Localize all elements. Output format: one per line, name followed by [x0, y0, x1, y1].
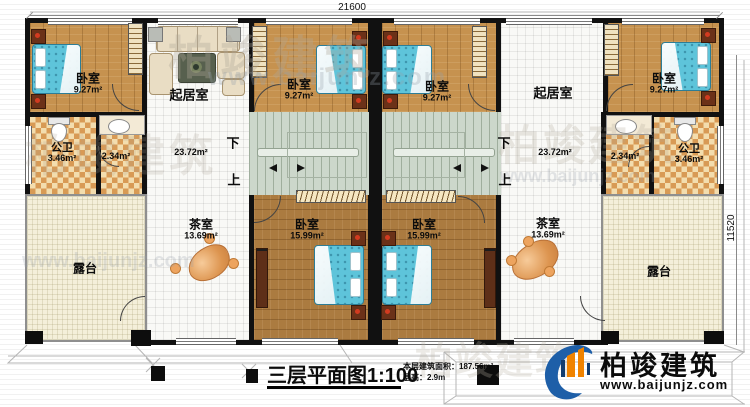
nightstand-br5-b	[351, 305, 366, 320]
bathroom-right-area: 3.46m²	[675, 155, 704, 165]
sofa-ottoman	[222, 79, 245, 96]
nightstand-br3-b	[383, 94, 398, 109]
window-bottom-br5	[262, 338, 338, 345]
wardrobe-br3	[472, 26, 487, 78]
living-left-name: 起居室	[169, 85, 208, 104]
pillow-br2-b	[352, 71, 363, 90]
nightstand-br2-b	[352, 94, 367, 109]
bedroom-1-area: 9.27m²	[74, 86, 103, 96]
column-4	[704, 331, 724, 344]
nightstand-br6-b	[381, 305, 396, 320]
balcony-door-hatch-right	[386, 190, 456, 203]
pillow-br5-a	[350, 252, 361, 271]
stair-down-right: 下	[497, 133, 510, 152]
pillow-br5-b	[350, 278, 361, 297]
table-flower	[190, 61, 202, 73]
pillow-br1-a	[35, 48, 46, 67]
tea-stool-left-b	[170, 263, 181, 274]
stair-up-right: 上	[498, 170, 511, 189]
nightstand-br1-a	[31, 29, 46, 44]
stair-arrow-left-a	[269, 164, 277, 172]
window-top-1	[48, 18, 132, 25]
bedroom-4-area: 9.27m²	[650, 86, 679, 96]
nightstand-br4-a	[701, 28, 716, 43]
center-party-wall	[369, 18, 382, 345]
pillow-br1-b	[35, 70, 46, 89]
bedroom-3-label: 卧室 9.27m²	[423, 80, 452, 103]
bedroom-6-area: 15.99m²	[407, 232, 441, 242]
column-3	[601, 331, 619, 344]
window-top-2	[158, 18, 238, 25]
living-right-area: 23.72m²	[538, 147, 572, 157]
stair-arrow-right-b	[481, 164, 489, 172]
column-2	[131, 330, 151, 346]
bedroom-2-area: 9.27m²	[285, 92, 314, 102]
tea-right-area: 13.69m²	[531, 231, 565, 241]
window-top-5	[506, 18, 592, 25]
bedroom-6-label: 卧室 15.99m²	[407, 218, 441, 241]
column-1	[25, 331, 43, 344]
sofa-side-table-a	[148, 27, 163, 42]
stair-down-left: 下	[226, 133, 239, 152]
floor-plan-canvas: 柏竣建筑 www.baijunjz.com 柏竣建筑 www.baijunjz.…	[0, 0, 750, 407]
tea-stool-right-b	[506, 255, 517, 266]
tv-cabinet-br6	[484, 248, 496, 308]
dimension-line-top	[30, 15, 720, 16]
living-right-name: 起居室	[533, 83, 572, 102]
nightstand-br3-a	[383, 31, 398, 46]
pillow-br6-a	[386, 252, 397, 271]
bathroom-left-area: 3.46m²	[48, 154, 77, 164]
tea-left-area: 13.69m²	[184, 232, 218, 242]
pillow-br4-a	[697, 46, 708, 65]
window-top-3	[266, 18, 352, 25]
wardrobe-br2	[252, 26, 267, 78]
washbasin-left	[108, 119, 130, 134]
dimension-right-value: 11520	[726, 214, 737, 241]
bedroom-4-label: 卧室 9.27m²	[650, 72, 679, 95]
bedroom-1-label: 卧室 9.27m²	[74, 72, 103, 95]
bedroom-2-label: 卧室 9.27m²	[285, 78, 314, 101]
pillow-br3-b	[386, 71, 397, 90]
pillow-br2-a	[352, 49, 363, 68]
tea-right-label: 茶室 13.69m²	[531, 217, 565, 240]
brand-logo-icon	[537, 341, 599, 403]
dimension-line-right	[736, 55, 737, 345]
tea-stool-right-c	[544, 266, 555, 277]
pillow-br3-a	[386, 49, 397, 68]
window-right-bath	[717, 126, 724, 184]
plan-height-info: 层高：2.9m	[403, 372, 445, 383]
tea-stool-left-c	[228, 258, 239, 269]
plan-title: 三层平面图1:100	[267, 359, 418, 388]
pillow-br4-b	[697, 68, 708, 87]
nightstand-br2-a	[352, 31, 367, 46]
bathroom-right-label: 公卫 3.46m²	[675, 143, 704, 165]
plan-title-underline	[267, 386, 401, 389]
washroom-right-area: 2.34m²	[611, 151, 640, 161]
living-left-area: 23.72m²	[174, 147, 208, 157]
sofa-side-table-b	[226, 27, 241, 42]
window-top-4	[394, 18, 480, 25]
sofa-armchair	[217, 52, 245, 79]
bedroom-5-label: 卧室 15.99m²	[290, 218, 324, 241]
dimension-top-value: 21600	[338, 2, 366, 13]
tea-left-label: 茶室 13.69m²	[184, 218, 218, 241]
tv-cabinet-br5	[256, 248, 268, 308]
plan-area-info: 本层建筑面积：187.56m²	[403, 361, 493, 372]
bedroom-3-area: 9.27m²	[423, 94, 452, 104]
window-bottom-br6	[398, 338, 474, 345]
window-top-6	[622, 18, 704, 25]
stair-arrow-left-b	[297, 164, 305, 172]
balcony-door-hatch-left	[296, 190, 366, 203]
bathroom-left-label: 公卫 3.46m²	[48, 142, 77, 164]
wardrobe-br1	[128, 23, 143, 75]
nightstand-br1-b	[31, 94, 46, 109]
window-bottom-tea-left	[176, 338, 236, 345]
stair-up-left: 上	[227, 170, 240, 189]
brand-url: www.baijunjz.com	[600, 377, 728, 392]
washroom-left-area: 2.34m²	[102, 151, 131, 161]
terrace-left-name: 露台	[73, 260, 97, 277]
column-6	[246, 369, 258, 383]
wardrobe-br4	[604, 24, 619, 76]
column-5	[151, 366, 165, 381]
window-left-bath	[25, 126, 32, 184]
nightstand-br6-a	[381, 231, 396, 246]
terrace-right-name: 露台	[647, 263, 671, 280]
nightstand-br5-a	[351, 231, 366, 246]
washbasin-right	[615, 119, 637, 134]
bedroom-5-area: 15.99m²	[290, 232, 324, 242]
pillow-br6-b	[386, 278, 397, 297]
nightstand-br4-b	[701, 91, 716, 106]
stair-arrow-right-a	[453, 164, 461, 172]
